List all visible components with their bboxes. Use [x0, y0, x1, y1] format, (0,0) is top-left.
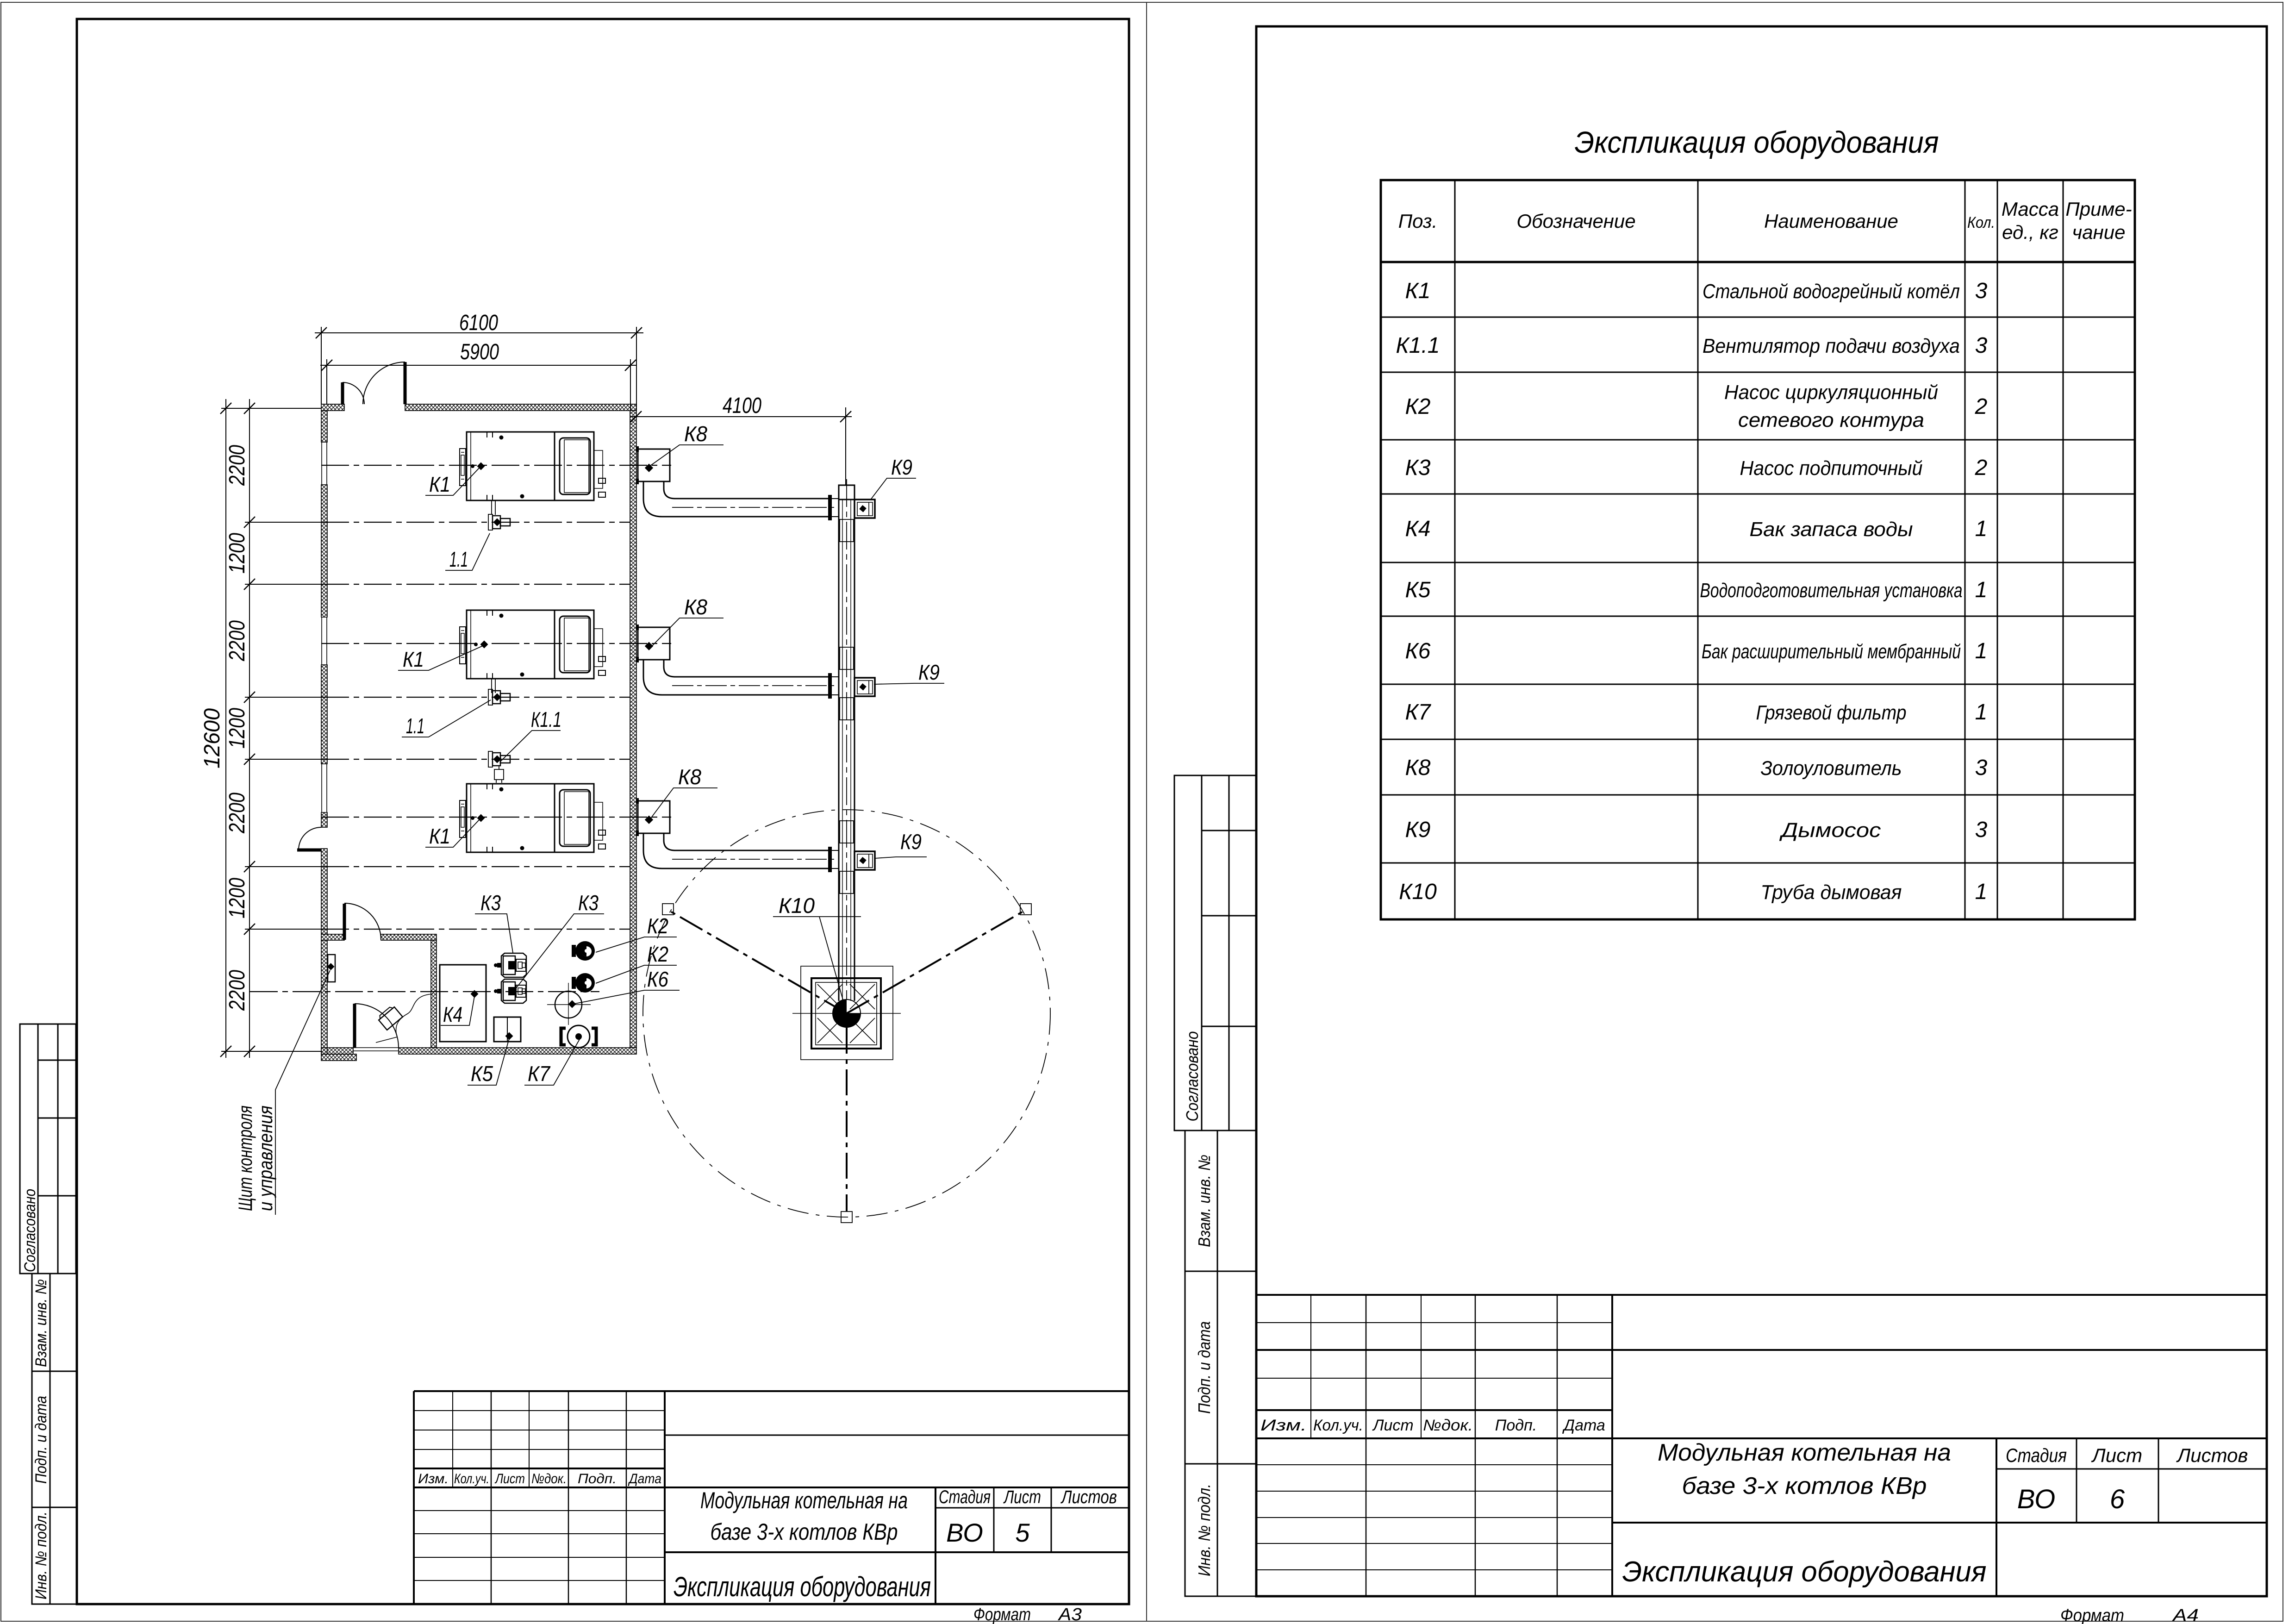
svg-text:2: 2	[1975, 456, 1988, 480]
svg-text:К8: К8	[678, 765, 701, 789]
svg-text:Согласовано: Согласовано	[1183, 1031, 1202, 1122]
svg-text:К5: К5	[1405, 578, 1431, 602]
svg-text:2200: 2200	[225, 445, 249, 486]
svg-text:Инв. № подл.: Инв. № подл.	[32, 1512, 50, 1599]
svg-text:2200: 2200	[225, 793, 249, 834]
svg-text:Подп. и дата: Подп. и дата	[1195, 1321, 1214, 1414]
svg-text:Модульная котельная на: Модульная котельная на	[1658, 1439, 1951, 1466]
svg-text:Инв. № подл.: Инв. № подл.	[1195, 1484, 1214, 1576]
svg-text:Кол.: Кол.	[1967, 214, 1995, 231]
svg-text:Бак запаса воды: Бак запаса воды	[1750, 518, 1913, 541]
svg-text:Взам. инв. №: Взам. инв. №	[1195, 1155, 1214, 1247]
svg-text:Поз.: Поз.	[1398, 210, 1438, 232]
svg-text:К9: К9	[900, 830, 922, 854]
svg-text:Водоподготовительная установка: Водоподготовительная установка	[1700, 579, 1963, 602]
svg-text:Экспликация оборудования: Экспликация оборудования	[674, 1571, 931, 1602]
svg-text:К3: К3	[480, 891, 501, 915]
svg-text:К6: К6	[1405, 639, 1431, 663]
svg-text:Приме-: Приме-	[2065, 198, 2132, 220]
svg-text:К1.1: К1.1	[531, 707, 561, 731]
svg-text:1200: 1200	[225, 533, 249, 574]
svg-text:Листов: Листов	[1060, 1487, 1117, 1507]
svg-text:и управления: и управления	[255, 1106, 276, 1211]
svg-text:Кол.уч.: Кол.уч.	[454, 1471, 489, 1487]
svg-text:ВО: ВО	[2017, 1484, 2056, 1514]
svg-text:К2: К2	[647, 942, 668, 966]
svg-text:№док.: №док.	[531, 1471, 567, 1487]
svg-text:Модульная котельная на: Модульная котельная на	[700, 1487, 908, 1513]
svg-text:№док.: №док.	[1423, 1417, 1473, 1434]
svg-text:К8: К8	[684, 422, 707, 446]
svg-text:К4: К4	[1405, 517, 1431, 541]
svg-text:1: 1	[1975, 880, 1988, 904]
svg-text:1: 1	[1975, 517, 1988, 541]
svg-text:Подп. и дата: Подп. и дата	[32, 1396, 50, 1484]
svg-text:Грязевой фильтр: Грязевой фильтр	[1756, 701, 1907, 724]
svg-text:К9: К9	[1405, 818, 1431, 842]
svg-text:Стальной водогрейный котёл: Стальной водогрейный котёл	[1703, 280, 1960, 303]
svg-text:базе 3-х котлов КВр: базе 3-х котлов КВр	[1682, 1473, 1927, 1499]
svg-text:К6: К6	[647, 967, 668, 991]
svg-text:К1.1: К1.1	[1396, 333, 1440, 358]
svg-text:5: 5	[1015, 1518, 1030, 1547]
svg-text:3: 3	[1975, 279, 1988, 303]
svg-text:1: 1	[1975, 700, 1988, 725]
svg-text:Экспликация оборудования: Экспликация оборудования	[1622, 1556, 1987, 1588]
svg-text:Лист: Лист	[1372, 1417, 1414, 1434]
svg-text:3: 3	[1975, 756, 1988, 780]
svg-text:К1: К1	[429, 824, 450, 848]
svg-text:К8: К8	[684, 595, 707, 619]
svg-text:2: 2	[1975, 394, 1988, 419]
svg-text:Вентилятор подачи воздуха: Вентилятор подачи воздуха	[1703, 335, 1960, 357]
svg-text:К10: К10	[779, 893, 815, 918]
svg-text:1200: 1200	[225, 878, 249, 918]
svg-text:Масса: Масса	[2002, 198, 2059, 220]
svg-text:Дата: Дата	[628, 1471, 661, 1487]
svg-text:6: 6	[2110, 1484, 2125, 1514]
svg-text:К7: К7	[1405, 700, 1432, 725]
svg-text:1: 1	[1975, 639, 1988, 663]
svg-text:Лист: Лист	[1003, 1487, 1041, 1507]
svg-text:Дымосос: Дымосос	[1779, 819, 1881, 842]
svg-text:3: 3	[1975, 818, 1988, 842]
svg-text:К3: К3	[578, 891, 599, 915]
svg-text:Лист: Лист	[2091, 1444, 2142, 1466]
svg-text:сетевого контура: сетевого контура	[1738, 409, 1924, 431]
svg-text:2200: 2200	[225, 970, 249, 1011]
svg-text:Труба дымовая: Труба дымовая	[1761, 881, 1902, 904]
svg-text:Согласовано: Согласовано	[21, 1189, 39, 1272]
svg-text:К5: К5	[471, 1062, 493, 1086]
svg-text:1200: 1200	[225, 708, 249, 749]
svg-text:ВО: ВО	[946, 1518, 983, 1547]
svg-text:Экспликация оборудования: Экспликация оборудования	[1575, 125, 1939, 159]
svg-text:Формат: Формат	[973, 1605, 1031, 1624]
svg-text:К1: К1	[429, 472, 450, 496]
svg-text:Стадия: Стадия	[939, 1487, 991, 1507]
svg-text:Подп.: Подп.	[1495, 1417, 1537, 1434]
svg-text:Листов: Листов	[2176, 1444, 2248, 1466]
svg-text:Насос циркуляционный: Насос циркуляционный	[1724, 381, 1938, 404]
svg-text:Щит контроля: Щит контроля	[234, 1106, 256, 1211]
svg-text:Подп.: Подп.	[578, 1471, 617, 1487]
svg-text:Стадия: Стадия	[2006, 1444, 2067, 1466]
svg-text:К9: К9	[891, 455, 912, 479]
svg-text:А3: А3	[1058, 1605, 1082, 1624]
svg-text:Формат: Формат	[2060, 1606, 2124, 1624]
svg-text:К7: К7	[528, 1062, 550, 1086]
svg-text:6100: 6100	[459, 311, 498, 335]
svg-text:Насос подпиточный: Насос подпиточный	[1740, 457, 1923, 480]
svg-text:1.1: 1.1	[449, 547, 468, 571]
svg-text:Золоуловитель: Золоуловитель	[1761, 757, 1902, 780]
svg-text:Изм.: Изм.	[418, 1471, 449, 1487]
svg-text:1: 1	[1975, 578, 1988, 602]
svg-text:А4: А4	[2172, 1606, 2199, 1624]
svg-text:12600: 12600	[200, 708, 225, 768]
svg-text:К1: К1	[1405, 279, 1431, 303]
svg-text:чание: чание	[2072, 221, 2126, 243]
svg-text:2200: 2200	[225, 620, 249, 662]
svg-text:Изм.: Изм.	[1260, 1417, 1307, 1434]
svg-text:Бак расширительный мембранный: Бак расширительный мембранный	[1702, 640, 1961, 663]
svg-text:К4: К4	[443, 1002, 462, 1026]
svg-text:5900: 5900	[460, 340, 499, 364]
svg-text:4100: 4100	[723, 394, 761, 418]
svg-text:ед., кг: ед., кг	[2002, 221, 2058, 243]
svg-text:К3: К3	[1405, 456, 1431, 480]
svg-text:Взам. инв. №: Взам. инв. №	[32, 1279, 50, 1367]
svg-text:базе 3-х котлов КВр: базе 3-х котлов КВр	[711, 1519, 898, 1545]
svg-text:К2: К2	[1405, 394, 1431, 419]
svg-text:К1: К1	[403, 647, 424, 671]
svg-text:Обозначение: Обозначение	[1516, 210, 1635, 232]
svg-text:К8: К8	[1405, 756, 1431, 780]
svg-text:Лист: Лист	[494, 1471, 525, 1487]
svg-text:Наименование: Наименование	[1764, 210, 1898, 232]
svg-text:Дата: Дата	[1562, 1417, 1605, 1434]
svg-text:К9: К9	[918, 660, 940, 684]
svg-text:К10: К10	[1399, 880, 1437, 904]
svg-text:Кол.уч.: Кол.уч.	[1313, 1417, 1363, 1434]
svg-text:1.1: 1.1	[406, 714, 424, 738]
svg-text:К2: К2	[647, 914, 668, 938]
svg-text:3: 3	[1975, 333, 1988, 358]
